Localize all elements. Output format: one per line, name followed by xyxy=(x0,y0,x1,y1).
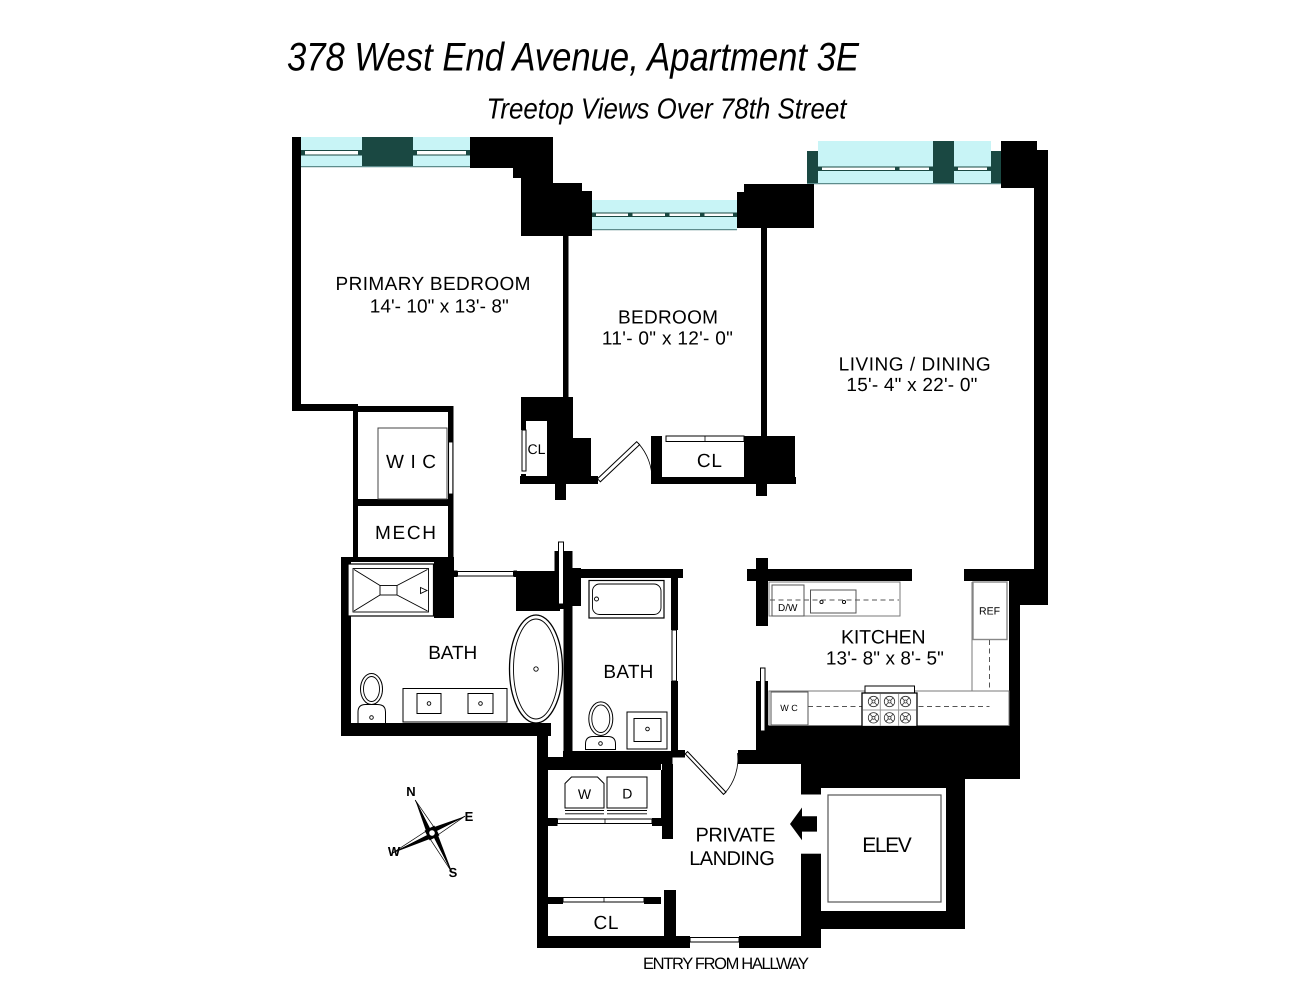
svg-text:14'- 10" x 13'- 8": 14'- 10" x 13'- 8" xyxy=(370,296,509,317)
svg-text:W I C: W I C xyxy=(386,452,436,473)
svg-text:ELEV: ELEV xyxy=(862,834,912,857)
svg-text:W C: W C xyxy=(780,703,798,713)
svg-text:11'- 0" x 12'- 0": 11'- 0" x 12'- 0" xyxy=(602,329,733,350)
svg-text:D/W: D/W xyxy=(778,603,798,614)
svg-text:N: N xyxy=(406,784,415,799)
svg-text:BEDROOM: BEDROOM xyxy=(618,307,718,328)
svg-text:Treetop Views Over 78th Street: Treetop Views Over 78th Street xyxy=(487,94,849,126)
svg-text:W: W xyxy=(388,844,401,859)
svg-text:15'- 4" x 22'- 0": 15'- 4" x 22'- 0" xyxy=(846,375,977,396)
svg-text:W: W xyxy=(578,786,592,802)
svg-text:CL: CL xyxy=(594,913,619,934)
svg-text:KITCHEN: KITCHEN xyxy=(841,626,926,648)
svg-text:BATH: BATH xyxy=(603,662,653,683)
svg-text:LANDING: LANDING xyxy=(689,848,775,870)
svg-text:D: D xyxy=(622,786,632,802)
svg-text:S: S xyxy=(449,865,458,880)
svg-text:BATH: BATH xyxy=(428,643,477,664)
svg-text:13'- 8" x 8'- 5": 13'- 8" x 8'- 5" xyxy=(826,649,944,670)
svg-text:378 West End Avenue, Apartment: 378 West End Avenue, Apartment 3E xyxy=(287,36,860,80)
svg-text:E: E xyxy=(465,809,474,824)
svg-text:CL: CL xyxy=(697,451,722,472)
svg-text:PRIMARY BEDROOM: PRIMARY BEDROOM xyxy=(336,274,531,295)
svg-text:PRIVATE: PRIVATE xyxy=(696,824,776,846)
svg-text:LIVING / DINING: LIVING / DINING xyxy=(839,355,991,376)
svg-text:ENTRY FROM HALLWAY: ENTRY FROM HALLWAY xyxy=(643,955,809,973)
svg-text:REF: REF xyxy=(979,605,1000,617)
svg-text:CL: CL xyxy=(528,441,546,457)
